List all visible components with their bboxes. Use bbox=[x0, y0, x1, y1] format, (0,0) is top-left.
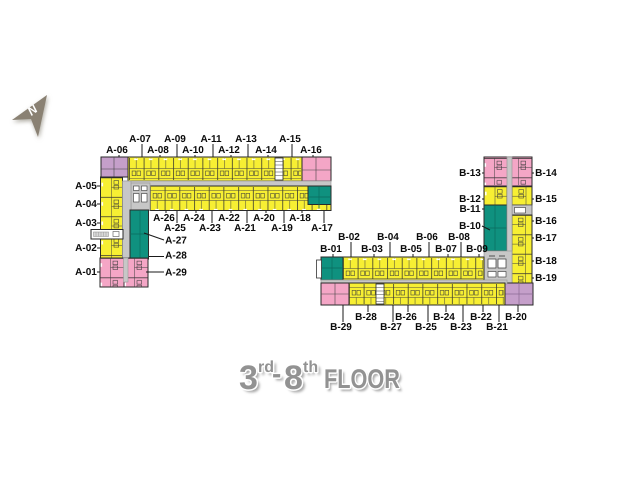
svg-text:B-06: B-06 bbox=[416, 232, 438, 243]
svg-text:A-13: A-13 bbox=[235, 134, 257, 145]
svg-text:A-14: A-14 bbox=[255, 145, 277, 156]
svg-text:B-11: B-11 bbox=[459, 204, 481, 215]
svg-text:B-01: B-01 bbox=[320, 244, 342, 255]
svg-text:A-07: A-07 bbox=[129, 134, 151, 145]
svg-text:B-21: B-21 bbox=[486, 322, 508, 333]
svg-text:B-02: B-02 bbox=[338, 232, 360, 243]
svg-text:FLOOR: FLOOR bbox=[324, 364, 400, 394]
svg-text:A-23: A-23 bbox=[199, 223, 221, 234]
svg-text:A-05: A-05 bbox=[75, 181, 97, 192]
svg-text:3: 3 bbox=[239, 359, 258, 397]
svg-text:A-02: A-02 bbox=[75, 243, 97, 254]
svg-text:A-25: A-25 bbox=[164, 223, 186, 234]
svg-text:B-29: B-29 bbox=[330, 322, 352, 333]
svg-text:th: th bbox=[303, 359, 318, 376]
svg-text:A-29: A-29 bbox=[165, 268, 187, 279]
svg-text:A-01: A-01 bbox=[75, 267, 97, 278]
svg-text:B-03: B-03 bbox=[361, 244, 383, 255]
svg-text:A-15: A-15 bbox=[279, 134, 301, 145]
svg-text:A-10: A-10 bbox=[182, 145, 204, 156]
svg-text:B-19: B-19 bbox=[535, 273, 557, 284]
svg-text:B-08: B-08 bbox=[448, 232, 470, 243]
svg-text:-: - bbox=[272, 358, 281, 389]
svg-text:B-10: B-10 bbox=[459, 221, 481, 232]
svg-text:B-13: B-13 bbox=[459, 168, 481, 179]
svg-text:A-03: A-03 bbox=[75, 218, 97, 229]
svg-text:A-19: A-19 bbox=[271, 223, 293, 234]
svg-text:B-15: B-15 bbox=[535, 194, 557, 205]
svg-text:B-20: B-20 bbox=[505, 312, 527, 323]
svg-text:A-17: A-17 bbox=[311, 223, 333, 234]
svg-text:B-04: B-04 bbox=[377, 232, 399, 243]
svg-text:B-16: B-16 bbox=[535, 216, 557, 227]
svg-text:A-12: A-12 bbox=[218, 145, 240, 156]
svg-text:A-09: A-09 bbox=[164, 134, 186, 145]
svg-text:A-27: A-27 bbox=[165, 236, 187, 247]
svg-text:B-23: B-23 bbox=[450, 322, 472, 333]
svg-text:A-16: A-16 bbox=[300, 145, 322, 156]
svg-text:A-08: A-08 bbox=[147, 145, 169, 156]
svg-text:B-17: B-17 bbox=[535, 233, 557, 244]
svg-text:B-27: B-27 bbox=[380, 322, 402, 333]
svg-text:B-09: B-09 bbox=[466, 244, 488, 255]
svg-text:A-28: A-28 bbox=[165, 251, 187, 262]
svg-text:A-06: A-06 bbox=[106, 145, 128, 156]
svg-text:8: 8 bbox=[284, 359, 303, 397]
svg-text:A-21: A-21 bbox=[234, 223, 256, 234]
svg-text:B-05: B-05 bbox=[400, 244, 422, 255]
svg-text:B-14: B-14 bbox=[535, 168, 557, 179]
svg-text:B-25: B-25 bbox=[415, 322, 437, 333]
svg-text:B-07: B-07 bbox=[435, 244, 457, 255]
svg-text:B-28: B-28 bbox=[355, 312, 377, 323]
svg-text:A-04: A-04 bbox=[75, 199, 97, 210]
svg-text:A-11: A-11 bbox=[200, 134, 222, 145]
svg-text:B-18: B-18 bbox=[535, 256, 557, 267]
